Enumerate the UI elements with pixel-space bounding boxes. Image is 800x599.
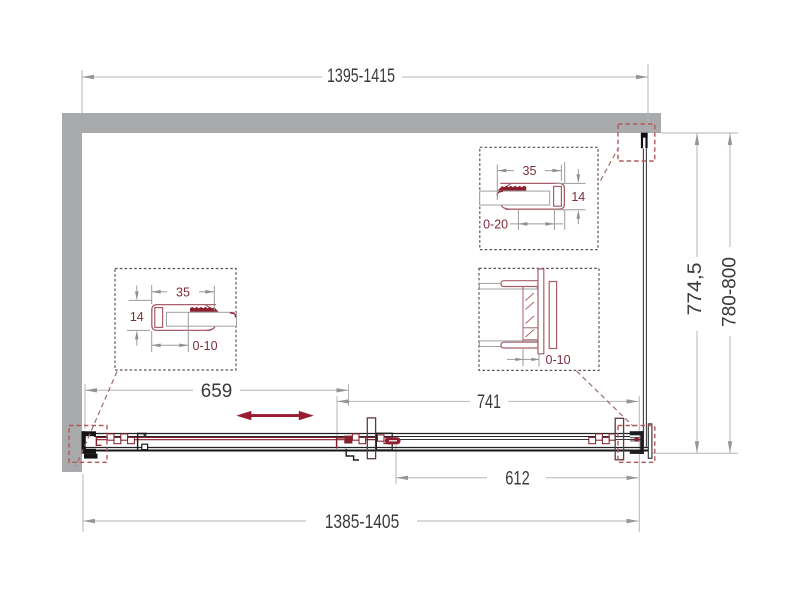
svg-text:659: 659	[201, 381, 233, 402]
svg-text:14: 14	[130, 310, 144, 324]
svg-text:780-800: 780-800	[720, 257, 741, 327]
svg-text:14: 14	[571, 190, 585, 204]
svg-text:741: 741	[477, 392, 501, 413]
svg-text:0-10: 0-10	[546, 353, 571, 367]
svg-text:1395-1415: 1395-1415	[327, 66, 395, 87]
svg-text:612: 612	[505, 469, 530, 490]
svg-text:0-20: 0-20	[483, 217, 508, 231]
svg-text:35: 35	[176, 285, 190, 299]
svg-text:774,5: 774,5	[685, 263, 706, 316]
svg-text:35: 35	[523, 164, 537, 178]
svg-text:1385-1405: 1385-1405	[325, 512, 400, 533]
svg-text:0-10: 0-10	[193, 339, 218, 353]
